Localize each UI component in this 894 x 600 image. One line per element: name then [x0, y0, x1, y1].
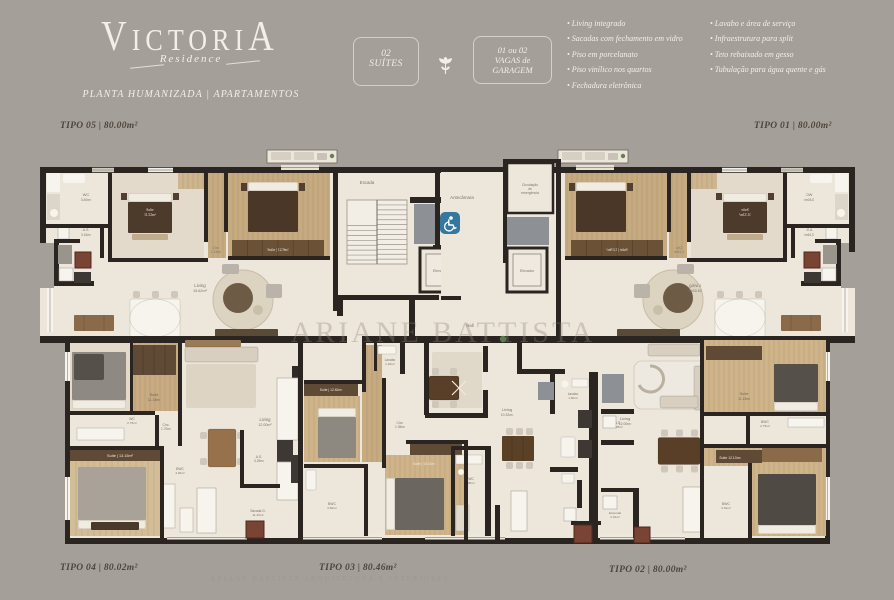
svg-text:Suíte | 10.41m²: Suíte | 10.41m²: [413, 462, 436, 466]
svg-text:Suíte | 12.9m²: Suíte | 12.9m²: [267, 248, 289, 252]
svg-text:15.62m²: 15.62m²: [687, 289, 702, 293]
svg-text:Living: Living: [502, 407, 512, 412]
svg-text:Antecâmara: Antecâmara: [450, 195, 474, 200]
svg-text:A.S.: A.S.: [83, 228, 90, 232]
svg-text:ARIANE BATTISTA ARQUITETURA E: ARIANE BATTISTA ARQUITETURA E INTERIORES: [210, 575, 450, 583]
svg-text:ARIANE BATTISTA: ARIANE BATTISTA: [290, 316, 595, 349]
svg-text:3.32m²: 3.32m²: [721, 506, 731, 510]
svg-text:Living: Living: [194, 283, 206, 288]
svg-text:15.62m²: 15.62m²: [193, 289, 208, 293]
svg-text:3.40m²: 3.40m²: [803, 198, 814, 202]
svg-text:Living: Living: [689, 283, 701, 288]
svg-text:2.75m²: 2.75m²: [127, 421, 137, 425]
svg-text:1.13m²: 1.13m²: [674, 250, 684, 254]
svg-text:1.05m²: 1.05m²: [395, 425, 405, 429]
svg-text:Suíte: Suíte: [740, 392, 748, 396]
svg-text:Suíte | 13.15m²: Suíte | 13.15m²: [107, 454, 134, 458]
svg-text:WC: WC: [83, 192, 90, 197]
svg-text:3.40m²: 3.40m²: [81, 198, 92, 202]
svg-text:Elevador: Elevador: [520, 269, 535, 273]
svg-text:Living: Living: [260, 417, 272, 422]
svg-text:11.52m²: 11.52m²: [144, 213, 156, 217]
svg-text:1.13m²: 1.13m²: [211, 250, 221, 254]
svg-text:12.00m²: 12.00m²: [258, 423, 272, 427]
svg-text:12.00m²: 12.00m²: [619, 422, 632, 426]
svg-text:Suíte | 12.62m²: Suíte | 12.62m²: [320, 388, 343, 392]
svg-text:3.16m²: 3.16m²: [804, 233, 814, 237]
svg-text:3.25m²: 3.25m²: [254, 459, 264, 463]
svg-text:1.70m²: 1.70m²: [161, 427, 171, 431]
svg-text:2.75m²: 2.75m²: [760, 424, 770, 428]
svg-text:emergência: emergência: [521, 191, 539, 195]
svg-text:10.32m²: 10.32m²: [501, 413, 514, 417]
svg-text:WC: WC: [806, 192, 813, 197]
svg-text:11.13m²: 11.13m²: [148, 398, 161, 402]
svg-text:3.60m²: 3.60m²: [327, 506, 337, 510]
svg-text:Suíte: Suíte: [146, 208, 154, 212]
svg-text:Living: Living: [620, 416, 630, 421]
svg-text:11.13m²: 11.13m²: [738, 397, 751, 401]
svg-text:A.S.: A.S.: [806, 228, 813, 232]
svg-text:3.16m²: 3.16m²: [81, 233, 91, 237]
svg-text:11.52m²: 11.52m²: [739, 213, 751, 217]
svg-text:1.60m²: 1.60m²: [568, 396, 577, 400]
svg-text:Escada: Escada: [360, 180, 375, 185]
svg-text:Suíte: Suíte: [150, 393, 159, 397]
svg-text:Suíte: Suíte: [741, 208, 749, 212]
svg-text:1.40m²: 1.40m²: [385, 362, 395, 366]
svg-text:Suíte | 12.9m²: Suíte | 12.9m²: [606, 248, 628, 252]
svg-text:11.32m²: 11.32m²: [252, 513, 263, 517]
svg-text:2.32m²: 2.32m²: [610, 515, 619, 519]
svg-text:Suíte 12.13m²: Suíte 12.13m²: [719, 456, 741, 460]
svg-text:4.26m²: 4.26m²: [175, 471, 184, 475]
